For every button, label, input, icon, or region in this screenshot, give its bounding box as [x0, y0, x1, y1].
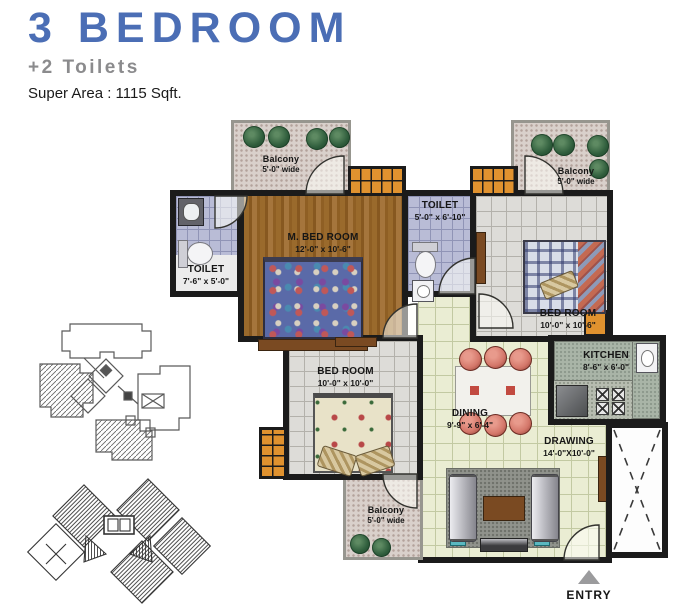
pillow — [316, 445, 357, 477]
floor-plan-page: 3 BEDROOM +2 Toilets Super Area : 1115 S… — [0, 0, 700, 615]
sofa-right — [531, 474, 559, 542]
pillow — [354, 445, 395, 477]
master-bed — [263, 257, 363, 339]
dresser — [476, 232, 486, 284]
balcony-top-left-label: Balcony 5'-0" wide — [231, 154, 331, 174]
wardrobe-top-2 — [470, 166, 518, 196]
balcony-bottom-label: Balcony 5'-0" wide — [346, 505, 426, 525]
entry-arrow-icon — [578, 570, 600, 584]
plant-icon — [350, 534, 370, 554]
bedroom-bottom-left-label: BED ROOM 10'-0" x 10'-0" — [283, 366, 408, 388]
plant-icon — [329, 127, 350, 148]
wc-bowl-icon — [187, 242, 213, 265]
plant-icon — [553, 134, 575, 156]
sofa-left — [449, 474, 477, 542]
wc-bowl-icon — [415, 251, 436, 278]
plant-icon — [243, 126, 265, 148]
wardrobe-top-1 — [348, 166, 406, 196]
tower-key-plan — [26, 316, 196, 471]
stove-icon — [556, 385, 588, 417]
dining-chair — [484, 346, 507, 369]
dining-chair — [459, 348, 482, 371]
plant-icon — [372, 538, 391, 557]
washbasin-icon — [412, 280, 434, 302]
kitchen — [548, 335, 666, 425]
bed-bottom-left — [313, 393, 393, 473]
balcony-top-right-label: Balcony 5'-0" wide — [531, 166, 621, 186]
table-mat — [470, 386, 479, 395]
dresser — [335, 337, 377, 347]
tv-console — [480, 538, 528, 552]
plant-icon — [587, 135, 609, 157]
entry-label: ENTRY — [559, 588, 619, 602]
dining-label: DINING 9'-9" x 6'-4" — [425, 408, 515, 430]
table-mat — [506, 386, 515, 395]
cluster-key-plan — [24, 478, 216, 612]
plant-icon — [268, 126, 290, 148]
dining-chair — [509, 348, 532, 371]
plant-icon — [531, 134, 553, 156]
master-bedroom-label: M. BED ROOM 12'-0" x 10'-6" — [248, 232, 398, 254]
floor-plan: Balcony 5'-0" wide M. BED ROOM 12'-0" x … — [163, 112, 700, 612]
bed-right — [523, 240, 606, 314]
page-title: 3 BEDROOM — [28, 6, 351, 51]
toilet-left-label: TOILET 7'-6" x 5'-0" — [171, 264, 241, 286]
burner-icon — [596, 402, 609, 415]
coffee-table — [483, 496, 525, 521]
burner-icon — [612, 402, 625, 415]
bedroom-right-label: BED ROOM 10'-0" x 10'-6" — [508, 308, 628, 330]
wardrobe-bottom-left — [259, 427, 287, 479]
washbasin-icon — [178, 198, 204, 226]
pillow — [539, 270, 579, 300]
subtitle-toilets: +2 Toilets — [28, 57, 351, 79]
kitchen-label: KITCHEN 8'-6" x 6'-0" — [556, 350, 656, 372]
header: 3 BEDROOM +2 Toilets Super Area : 1115 S… — [28, 6, 351, 102]
toilet-middle-label: TOILET 5'-0" x 6'-10" — [404, 200, 476, 222]
plant-icon — [306, 128, 328, 150]
blanket — [578, 242, 604, 312]
burner-icon — [596, 388, 609, 401]
super-area-text: Super Area : 1115 Sqft. — [28, 85, 351, 102]
drawing-label: DRAWING 14'-0"X10'-0" — [513, 436, 625, 458]
burner-icon — [612, 388, 625, 401]
